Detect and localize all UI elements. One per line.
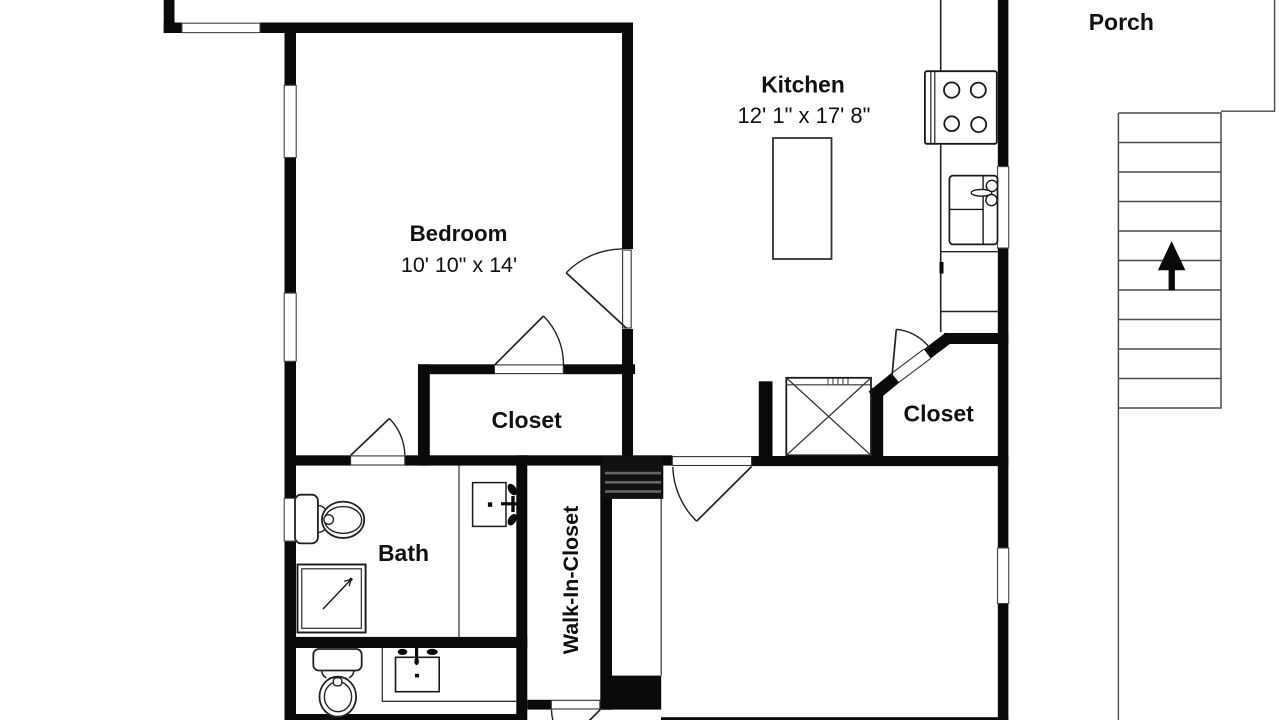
svg-text:Bath: Bath: [378, 540, 429, 566]
svg-text:Closet: Closet: [492, 407, 563, 433]
svg-text:12' 1" x 17' 8": 12' 1" x 17' 8": [738, 103, 871, 128]
svg-text:Walk-In-Closet: Walk-In-Closet: [559, 506, 583, 655]
svg-text:Bedroom: Bedroom: [410, 221, 508, 246]
svg-text:Kitchen: Kitchen: [761, 72, 845, 98]
svg-text:Closet: Closet: [904, 401, 975, 427]
svg-text:10' 10" x 14': 10' 10" x 14': [401, 253, 517, 277]
svg-text:Porch: Porch: [1089, 9, 1154, 35]
